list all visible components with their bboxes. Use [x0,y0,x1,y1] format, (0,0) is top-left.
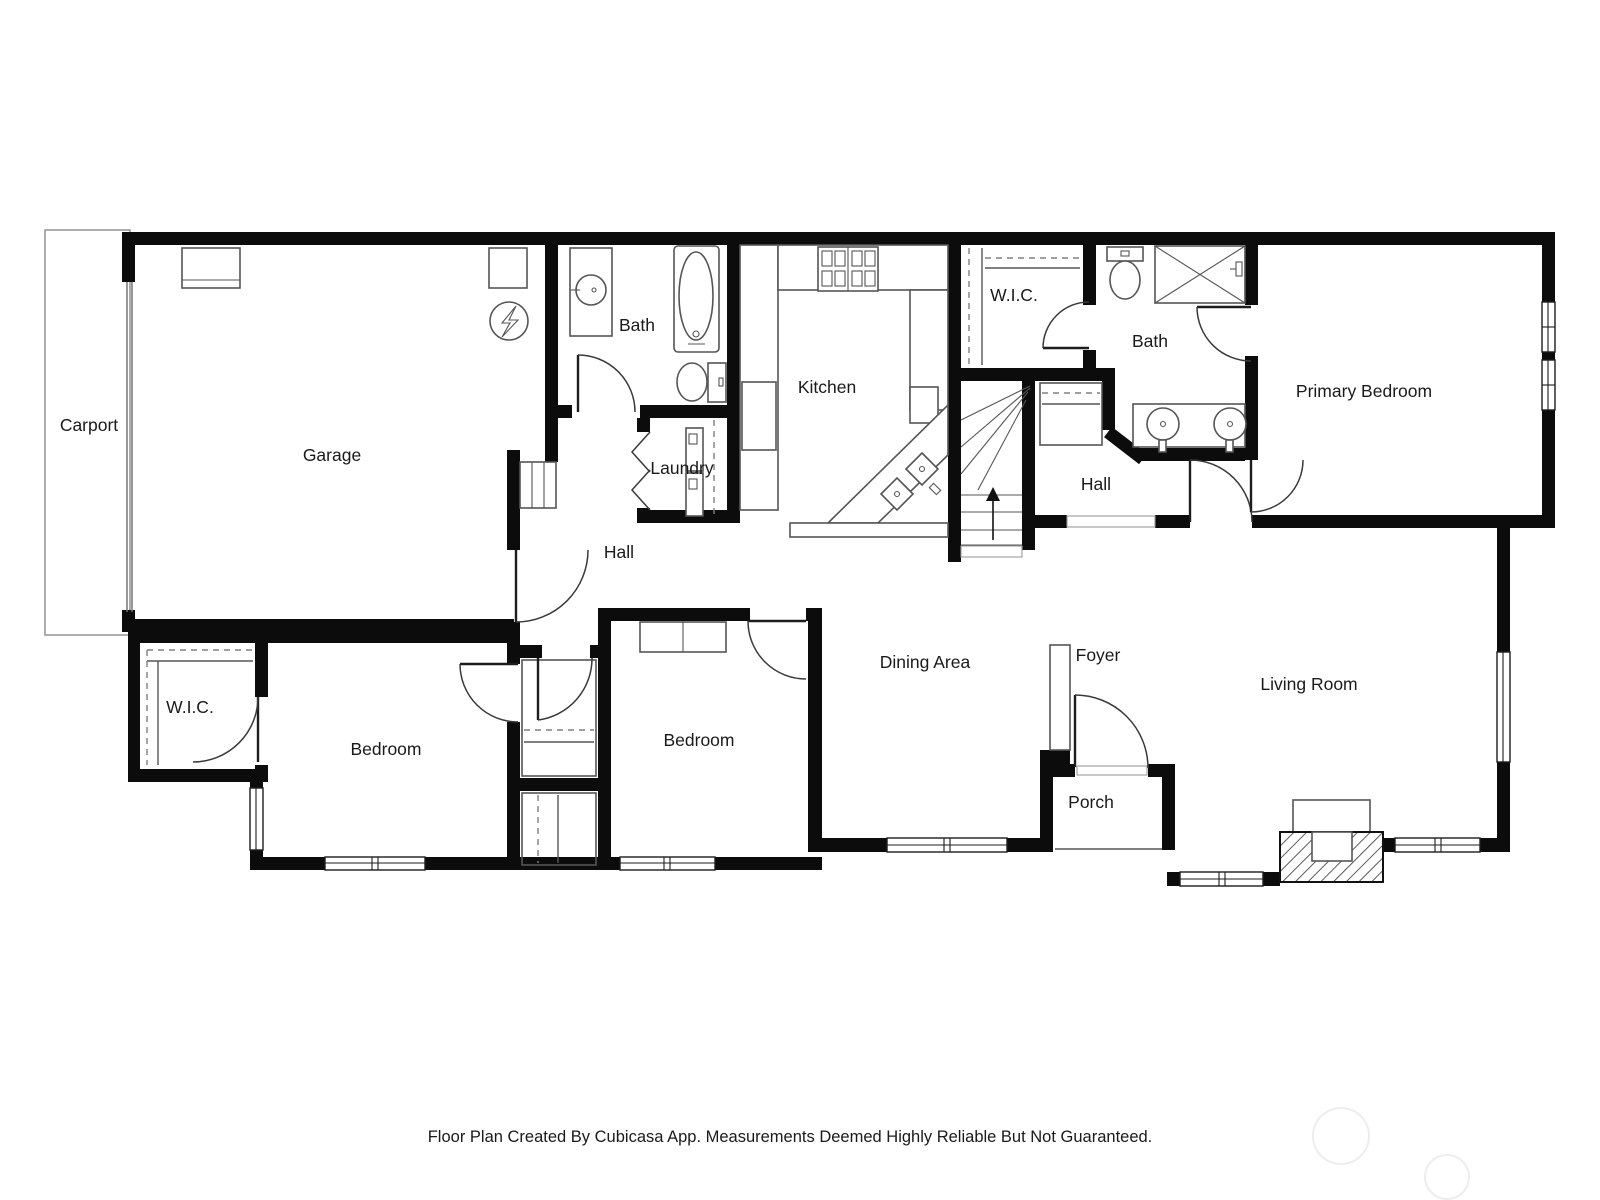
room-label-garage: Garage [303,445,361,465]
door-swing [538,658,592,720]
room-label-dining-area: Dining Area [880,652,971,672]
window [1542,302,1555,352]
watermark [1313,1108,1469,1199]
room-label-bedroom-left: Bedroom [350,739,421,759]
window [1542,360,1555,410]
door-swing [578,355,635,412]
window [887,838,1007,852]
window [250,788,263,850]
room-label-hall-upper: Hall [604,542,634,562]
toilet [1107,247,1143,299]
shower [1155,246,1245,303]
door-swing [748,621,806,679]
window [325,857,425,870]
door-swing [1190,460,1252,522]
front-door-threshold [1077,766,1147,775]
stove-icon [818,247,878,291]
door-swing [460,664,518,722]
double-vanity [1133,404,1246,452]
floor-plan-canvas: Carport Garage Bath Laundry Hall Kitchen… [0,0,1600,1200]
stairs [961,386,1030,545]
footer-disclaimer: Floor Plan Created By Cubicasa App. Meas… [428,1128,1153,1146]
toilet [677,363,726,402]
door-swing [1043,302,1089,348]
wardrobe [640,622,726,652]
bathroom-sink [570,248,612,336]
room-label-porch: Porch [1068,792,1114,812]
fireplace-icon [1280,800,1383,882]
water-heater-icon [490,302,528,340]
room-label-living-room: Living Room [1260,674,1357,694]
stairs-up-arrow-icon [986,487,1000,501]
hall-cabinet [520,462,556,508]
window [620,857,715,870]
room-label-bath-primary: Bath [1132,331,1168,351]
laundry-bifold-door [632,432,650,510]
door-swing [516,550,588,622]
front-door-swing [1075,695,1148,768]
room-label-laundry: Laundry [650,458,713,478]
pony-wall [1050,645,1070,750]
window [1497,652,1510,762]
room-label-hall-primary: Hall [1081,474,1111,494]
room-label-wic-primary: W.I.C. [990,285,1038,305]
room-label-foyer: Foyer [1076,645,1121,665]
room-label-primary-bedroom: Primary Bedroom [1296,381,1432,401]
door-swing [1197,307,1251,361]
bedroom-closet [522,660,596,865]
garage-storage [182,248,527,288]
window [1395,838,1480,852]
hall-closet [1040,383,1102,445]
room-label-wic-bedroom: W.I.C. [166,697,214,717]
door-swing [1251,460,1303,512]
room-label-kitchen: Kitchen [798,377,856,397]
walls [122,232,1555,886]
room-label-carport: Carport [60,415,118,435]
window [1180,872,1263,886]
room-label-bath-main: Bath [619,315,655,335]
bathtub [674,246,719,352]
room-label-bedroom-middle: Bedroom [663,730,734,750]
